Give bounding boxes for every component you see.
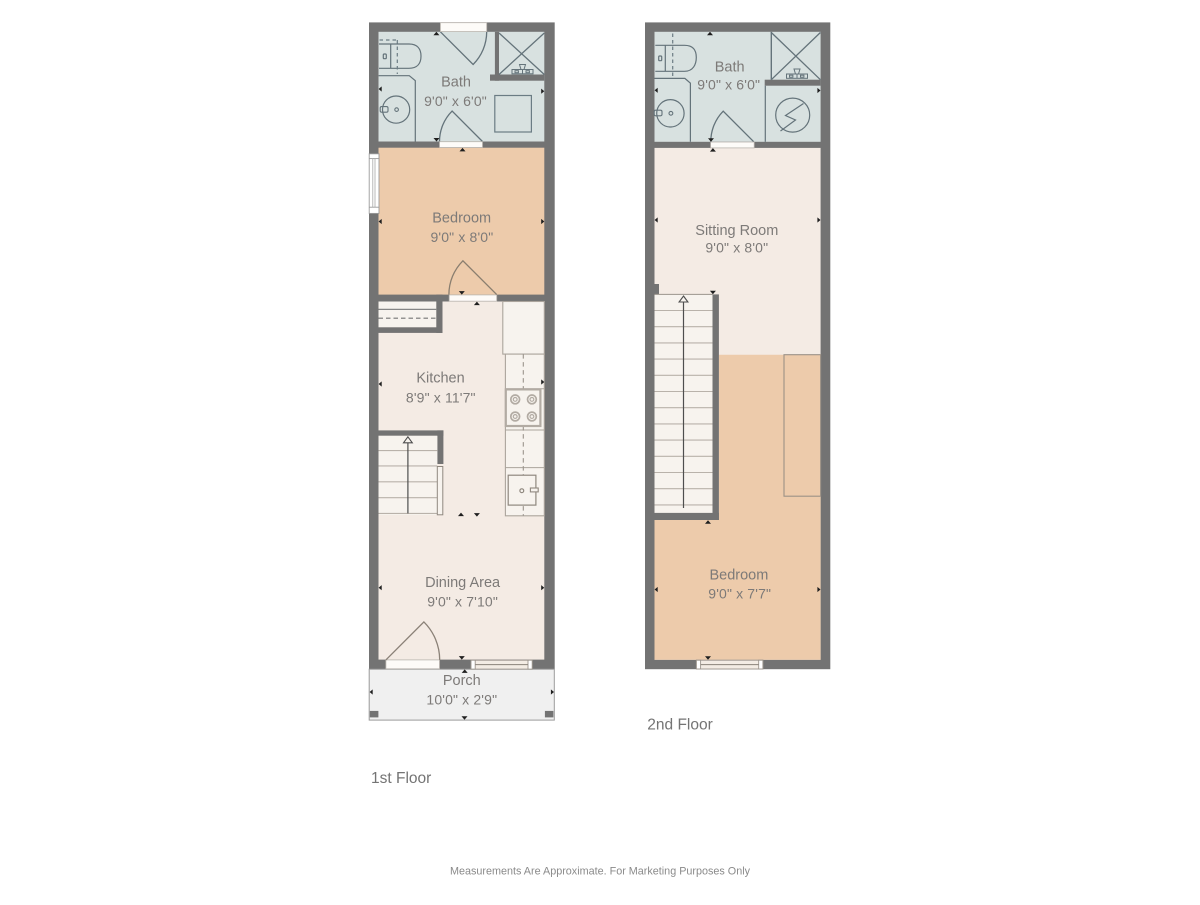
svg-text:8'9" x 11'7": 8'9" x 11'7" [406,390,476,406]
svg-text:Porch: Porch [443,673,481,689]
svg-text:Dining Area: Dining Area [425,575,501,591]
svg-text:Bedroom: Bedroom [709,568,768,584]
svg-text:Bath: Bath [441,75,471,91]
svg-text:Sitting Room: Sitting Room [695,223,778,239]
svg-text:9'0" x 6'0": 9'0" x 6'0" [697,76,760,92]
svg-text:10'0" x 2'9": 10'0" x 2'9" [426,692,497,708]
svg-text:2nd Floor: 2nd Floor [647,717,712,734]
svg-text:Bedroom: Bedroom [432,210,491,226]
svg-text:9'0" x 8'0": 9'0" x 8'0" [430,229,493,245]
svg-text:9'0" x 7'10": 9'0" x 7'10" [427,594,498,610]
svg-text:Kitchen: Kitchen [416,371,464,387]
svg-text:9'0" x 7'7": 9'0" x 7'7" [708,585,771,601]
svg-text:9'0" x 8'0": 9'0" x 8'0" [705,240,768,256]
svg-text:9'0" x 6'0": 9'0" x 6'0" [424,93,487,109]
svg-text:Bath: Bath [715,60,745,76]
svg-text:1st Floor: 1st Floor [371,770,431,787]
svg-text:Measurements Are Approximate.: Measurements Are Approximate. For Market… [450,866,751,878]
